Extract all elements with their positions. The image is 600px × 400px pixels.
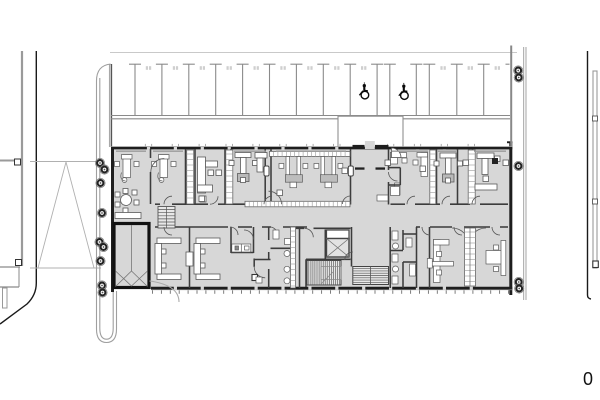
svg-text:0: 0 <box>583 369 593 389</box>
